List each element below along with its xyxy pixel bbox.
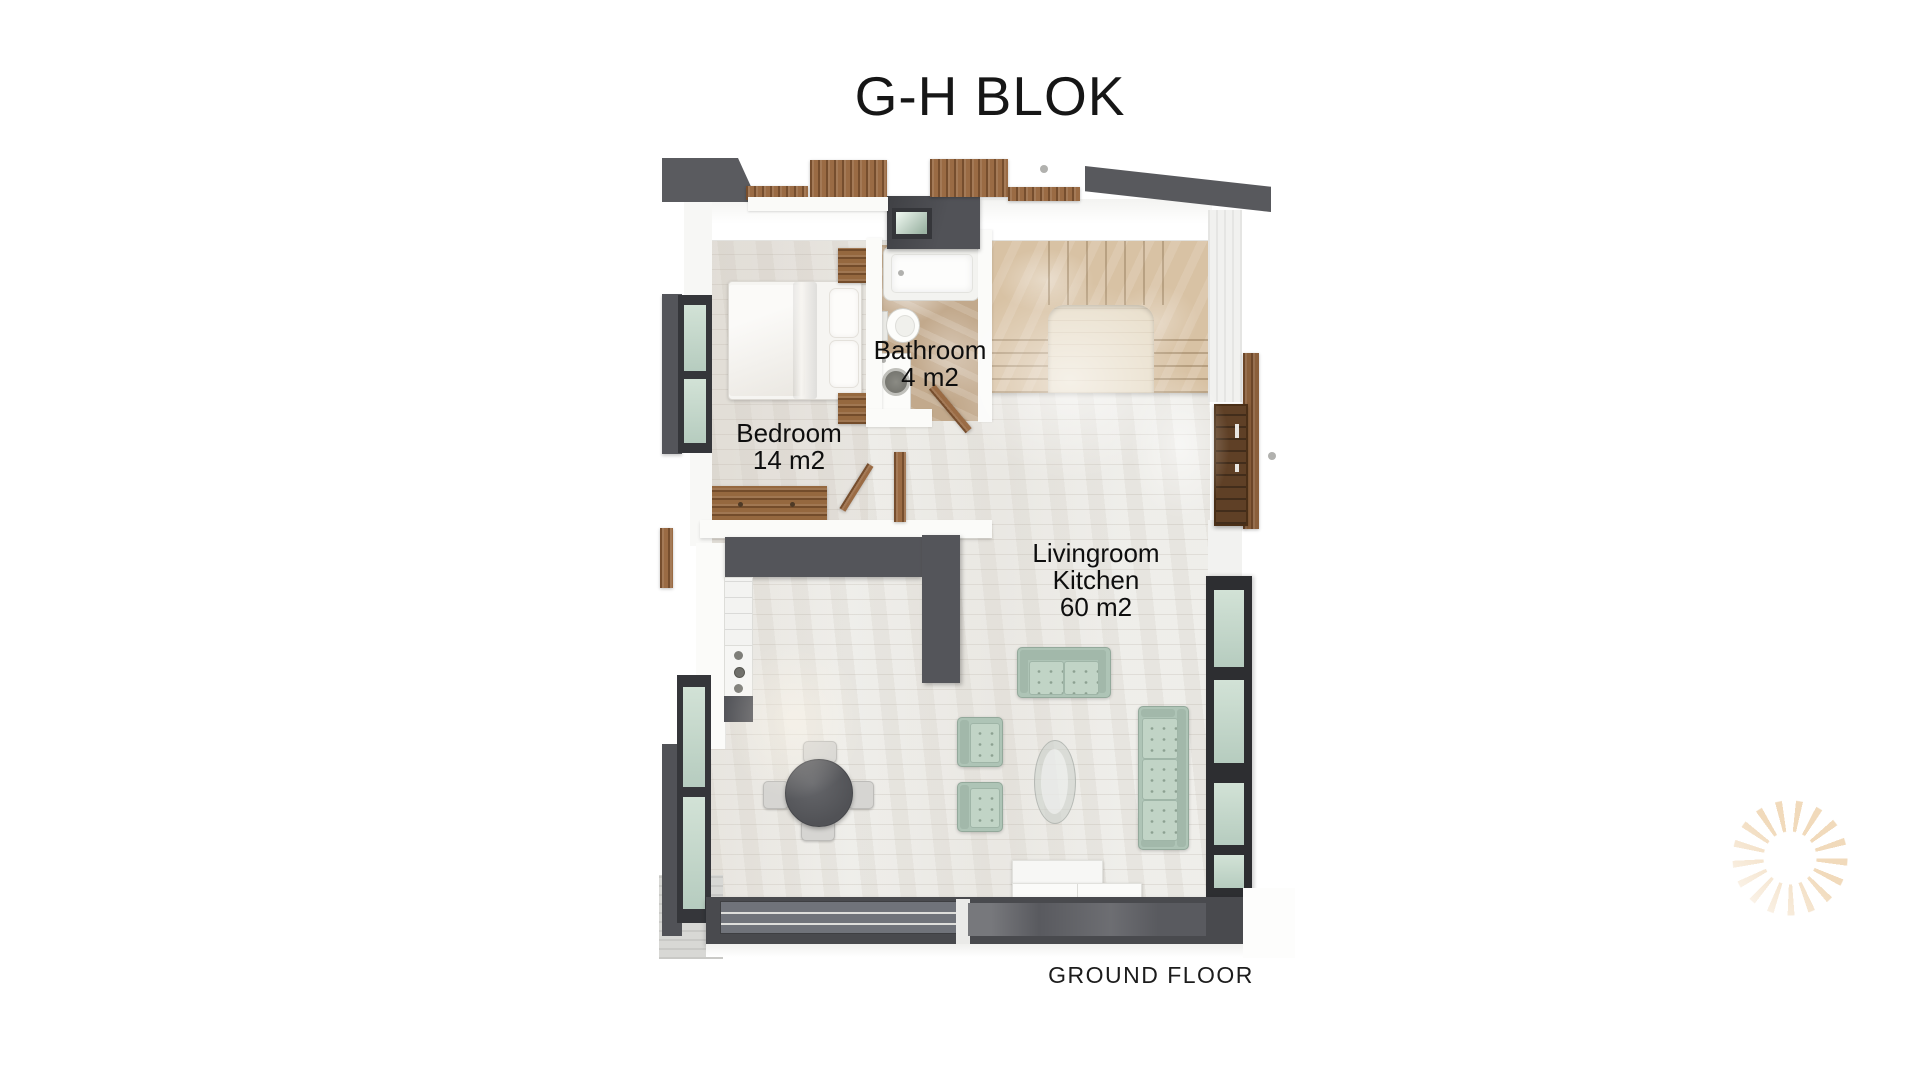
wardrobe-top-a: [810, 160, 887, 197]
pillow: [829, 288, 859, 338]
window-glass: [683, 797, 705, 909]
sofa-cushion: [1142, 718, 1178, 759]
tv-stand-upper: [1012, 860, 1103, 884]
roof-piece-top-left: [662, 158, 757, 202]
nightstand: [838, 248, 868, 283]
sun-logo: [1726, 794, 1854, 922]
armchair-cushion: [970, 723, 1000, 763]
stair-treads-right: [1154, 338, 1212, 393]
bedroom-window: [678, 295, 712, 453]
window-glass: [684, 305, 706, 371]
kitchen-counter-top: [725, 537, 922, 577]
ledge-top: [748, 197, 888, 211]
room-name: Livingroom: [1021, 540, 1171, 567]
sofa-cushion: [1142, 759, 1178, 800]
burner-icon: [734, 651, 743, 660]
sofa-backrest: [1020, 650, 1106, 660]
wall-bathroom-right: [978, 230, 992, 422]
dresser: [706, 486, 827, 524]
bathtub-drain: [898, 270, 904, 276]
kitchen-base-cabinet: [724, 696, 753, 722]
kitchen-fridge: [724, 577, 753, 647]
sofa-two-seat: [1017, 647, 1111, 698]
armchair-backrest: [960, 720, 969, 764]
wardrobe-top-b: [930, 159, 1008, 197]
coffee-table-glass: [1041, 749, 1068, 814]
dresser-knob: [790, 502, 795, 507]
kitchen-window: [677, 675, 711, 923]
armchair-backrest: [960, 785, 969, 829]
skylight-glass: [896, 212, 927, 234]
sofa-three-seat: [1138, 706, 1189, 850]
kitchen-counter-right: [922, 535, 960, 683]
sofa-armrest: [1141, 709, 1175, 717]
window-glass: [1214, 680, 1244, 763]
wood-panel-left: [660, 528, 673, 588]
room-label-livingroom-kitchen: Livingroom Kitchen 60 m2: [1021, 540, 1171, 621]
sofa-backrest: [1177, 709, 1186, 847]
coffee-table: [1034, 740, 1076, 824]
wall-bedroom-bathroom: [866, 238, 882, 426]
bathtub: [883, 246, 980, 301]
bed: [728, 281, 862, 400]
kitchen-cooktop: [724, 645, 753, 700]
wall-right-mid: [1208, 520, 1242, 578]
room-label-bathroom: Bathroom 4 m2: [855, 337, 1005, 391]
room-area: 14 m2: [714, 447, 864, 474]
room-area: 4 m2: [855, 364, 1005, 391]
window-glass: [1214, 855, 1244, 888]
terrace-corner: [1243, 888, 1295, 958]
burner-icon: [734, 667, 745, 678]
door-hardware: [1235, 424, 1239, 438]
sofa-cushion: [1142, 800, 1178, 841]
sofa-cushion: [1029, 661, 1064, 695]
dining-table: [785, 759, 853, 827]
room-area: 60 m2: [1021, 594, 1171, 621]
window-glass: [1214, 590, 1244, 667]
entrance-door-right: [1214, 404, 1248, 526]
window-glass: [1214, 783, 1244, 845]
sofa-armrest: [1020, 650, 1028, 693]
plan-title: G-H BLOK: [770, 64, 1210, 128]
bedroom-door-jamb: [894, 452, 906, 522]
armchair: [957, 782, 1003, 832]
glass-wall-right: [1206, 576, 1252, 902]
sun-fade-overlay: [1720, 788, 1860, 928]
sofa-armrest: [1098, 650, 1106, 693]
sofa-cushion: [1064, 661, 1099, 695]
room-label-bedroom: Bedroom 14 m2: [714, 420, 864, 474]
stair-treads-top: [1048, 232, 1166, 305]
entry-canopy: [887, 196, 980, 249]
dot-marker: [1268, 452, 1276, 460]
floorplan-page: G-H BLOK GROUND FLOOR: [0, 0, 1920, 1080]
sill-bottom: [706, 944, 1243, 957]
floor-caption: GROUND FLOOR: [1026, 962, 1276, 989]
staircase: [990, 232, 1212, 393]
window-glass: [684, 379, 706, 443]
sliding-door-left: [720, 901, 960, 934]
room-name: Bathroom: [855, 337, 1005, 364]
door-hardware: [1235, 464, 1239, 472]
wall-bathroom-bottom: [866, 409, 932, 427]
wall-right-upper: [1208, 210, 1242, 402]
wall-left-upper: [684, 200, 712, 298]
sliding-door-right: [968, 903, 1206, 936]
wood-deck-strip: [1008, 187, 1080, 201]
bed-blanket-fold: [793, 282, 817, 399]
burner-icon: [734, 684, 743, 693]
armchair-cushion: [970, 788, 1000, 828]
room-name: Bedroom: [714, 420, 864, 447]
stair-void-floor: [1048, 305, 1154, 393]
dresser-knob: [738, 502, 743, 507]
armchair: [957, 717, 1003, 767]
dot-marker: [1040, 165, 1048, 173]
window-glass: [683, 687, 705, 787]
toilet-seat: [895, 315, 915, 337]
entry-skylight-window: [892, 208, 932, 239]
room-name: Kitchen: [1021, 567, 1171, 594]
